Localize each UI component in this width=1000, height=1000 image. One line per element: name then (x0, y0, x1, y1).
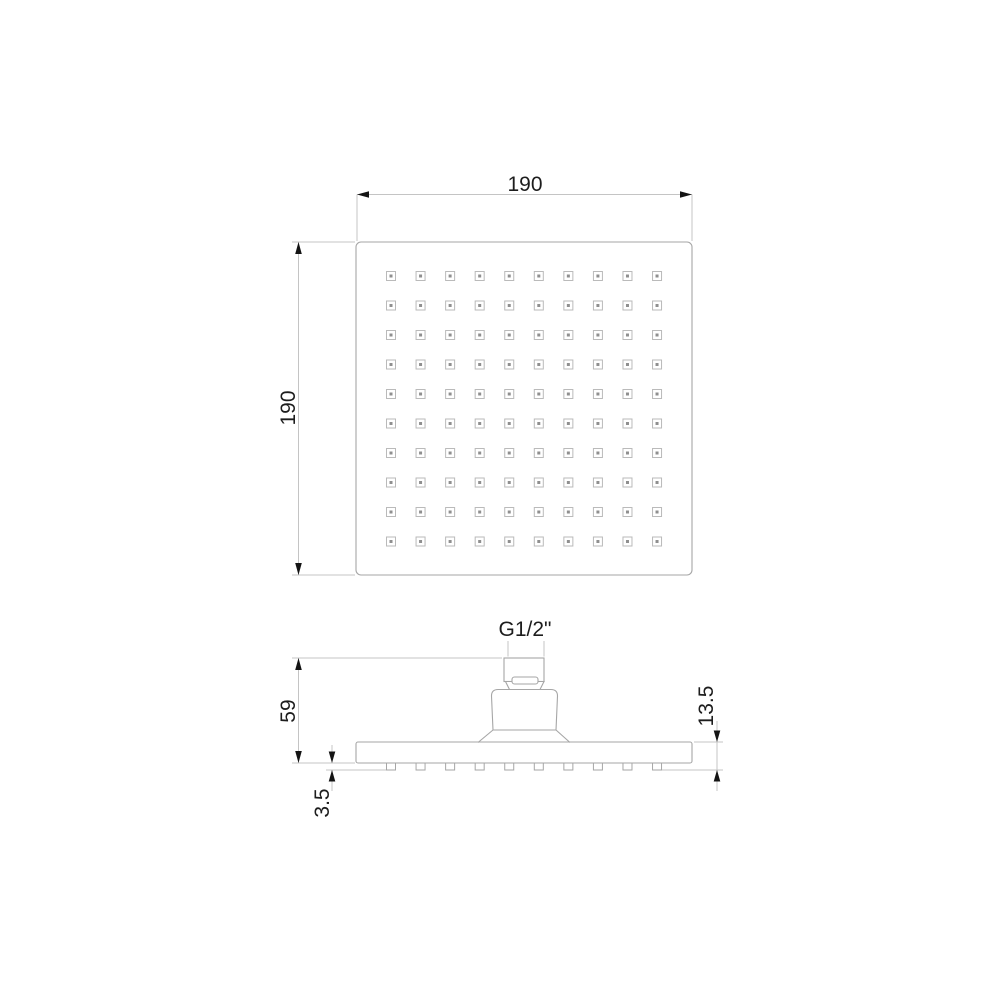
side-nozzle (623, 763, 632, 770)
side-nozzle (564, 763, 573, 770)
dim-top-width: 190 (357, 173, 692, 241)
nozzle-dot (596, 393, 599, 396)
nozzle-dot (390, 275, 393, 278)
nozzle-dot (656, 422, 659, 425)
nozzle-dot (596, 540, 599, 543)
nozzle-dot (508, 393, 511, 396)
nozzle-dot (478, 363, 481, 366)
nozzle-dot (390, 452, 393, 455)
technical-drawing: 190 190 G1/2" 59 (0, 0, 1000, 1000)
nozzle-dot (596, 511, 599, 514)
nozzle-dot (537, 452, 540, 455)
nozzle-dot (449, 363, 452, 366)
nozzle-dot (626, 334, 629, 337)
nozzle-dot (537, 511, 540, 514)
nozzle-dot (537, 334, 540, 337)
nozzle-dot (419, 422, 422, 425)
nozzle-dot (449, 422, 452, 425)
dim-nozzle-height-label: 3.5 (311, 788, 334, 817)
nozzle-dot (596, 481, 599, 484)
arrowhead-left (357, 191, 369, 198)
nozzle-dot (596, 422, 599, 425)
arrowhead-up (714, 770, 721, 782)
nozzle-dot (478, 422, 481, 425)
side-nozzle (446, 763, 455, 770)
side-view (356, 658, 692, 770)
nozzle-dot (419, 275, 422, 278)
arrowhead-down (295, 751, 302, 763)
nozzle-dot (508, 275, 511, 278)
nozzle-dot (508, 511, 511, 514)
nozzle-dot (596, 275, 599, 278)
arrowhead-up (329, 770, 336, 782)
nozzle-dot (596, 363, 599, 366)
arrowhead-down (295, 563, 302, 575)
nozzle-dot (626, 481, 629, 484)
nozzle-dot (390, 422, 393, 425)
dim-side-height-label: 59 (277, 699, 300, 722)
nozzle-dot (596, 452, 599, 455)
nozzle-dot (626, 393, 629, 396)
side-nozzle (653, 763, 662, 770)
nozzle-dot (419, 334, 422, 337)
nozzle-dot (390, 363, 393, 366)
arrowhead-right (680, 191, 692, 198)
nozzle-dot (390, 540, 393, 543)
nozzle-dot (626, 304, 629, 307)
nozzle-dot (449, 511, 452, 514)
nozzle-dot (596, 334, 599, 337)
nozzle-dot (419, 540, 422, 543)
nozzle-dot (390, 304, 393, 307)
side-nozzle (416, 763, 425, 770)
side-nozzle (475, 763, 484, 770)
nozzle-dot (419, 304, 422, 307)
nozzle-dot (656, 363, 659, 366)
dim-left-height-label: 190 (277, 390, 300, 425)
nozzle-dot (567, 334, 570, 337)
nozzle-dot (478, 481, 481, 484)
nozzle-dot (537, 393, 540, 396)
dim-left-height: 190 (277, 242, 355, 575)
nozzle-dot (508, 304, 511, 307)
nozzle-dot (626, 275, 629, 278)
nozzle-dot (626, 540, 629, 543)
nozzle-dot (567, 452, 570, 455)
nozzle-dot (508, 363, 511, 366)
nozzle-dot (478, 275, 481, 278)
nozzle-dot (656, 393, 659, 396)
nozzle-dot (478, 304, 481, 307)
nozzle-dot (449, 540, 452, 543)
nozzle-dot (390, 393, 393, 396)
dim-side-height: 59 (277, 658, 502, 763)
nozzle-dot (567, 540, 570, 543)
nozzle-dot (537, 540, 540, 543)
nozzle-dot (537, 363, 540, 366)
side-nozzle (505, 763, 514, 770)
showerhead-face-outline (356, 242, 692, 575)
collar-cap (512, 677, 538, 684)
nozzle-dot (419, 452, 422, 455)
dim-nozzle-height: 3.5 (311, 745, 386, 818)
nozzle-dot (508, 422, 511, 425)
arrowhead-down (329, 752, 336, 764)
nozzle-dot (626, 422, 629, 425)
nozzle-dot (596, 304, 599, 307)
nozzle-dot (508, 540, 511, 543)
nozzle-dot (478, 511, 481, 514)
side-nozzle (593, 763, 602, 770)
nozzle-dot (567, 363, 570, 366)
nozzle-dot (508, 452, 511, 455)
nozzle-dot (626, 511, 629, 514)
side-nozzle (534, 763, 543, 770)
nozzle-dot (478, 393, 481, 396)
nozzle-dot (390, 334, 393, 337)
thread-label: G1/2" (499, 618, 552, 641)
nozzle-dot (567, 511, 570, 514)
nozzle-dot (656, 334, 659, 337)
nozzle-dot (626, 363, 629, 366)
nozzle-dot (449, 275, 452, 278)
nozzle-dot (390, 511, 393, 514)
nozzle-dot (537, 481, 540, 484)
side-nozzle-row (387, 763, 662, 770)
nozzle-dot (656, 511, 659, 514)
nozzle-dot (656, 275, 659, 278)
nozzle-dot (567, 304, 570, 307)
nozzle-dot (537, 275, 540, 278)
dim-top-width-label: 190 (507, 173, 542, 196)
arrowhead-down (714, 731, 721, 743)
cone-flare-left (478, 730, 493, 743)
nozzle-grid (387, 272, 662, 547)
nozzle-dot (449, 334, 452, 337)
nozzle-dot (449, 452, 452, 455)
nozzle-dot (537, 304, 540, 307)
nozzle-dot (537, 422, 540, 425)
showerhead-plate (356, 742, 692, 763)
nozzle-dot (508, 334, 511, 337)
nozzle-dot (656, 304, 659, 307)
arrowhead-up (295, 658, 302, 670)
nozzle-dot (478, 334, 481, 337)
nozzle-dot (449, 393, 452, 396)
nozzle-dot (567, 422, 570, 425)
nozzle-dot (626, 452, 629, 455)
top-view (356, 242, 692, 575)
nozzle-dot (656, 452, 659, 455)
nozzle-dot (656, 540, 659, 543)
nozzle-dot (478, 452, 481, 455)
nozzle-dot (419, 511, 422, 514)
thread-callout: G1/2" (499, 618, 552, 657)
nozzle-dot (656, 481, 659, 484)
cone-flare-right (556, 730, 570, 743)
nozzle-dot (449, 481, 452, 484)
nozzle-dot (478, 540, 481, 543)
side-nozzle (387, 763, 396, 770)
dim-head-depth: 13.5 (662, 686, 723, 791)
nozzle-dot (419, 363, 422, 366)
dim-head-depth-label: 13.5 (695, 686, 718, 727)
nozzle-dot (449, 304, 452, 307)
nozzle-dot (390, 481, 393, 484)
nozzle-dot (567, 393, 570, 396)
arrowhead-up (295, 242, 302, 254)
nozzle-dot (508, 481, 511, 484)
cone-body (492, 690, 558, 731)
nozzle-dot (567, 481, 570, 484)
nozzle-dot (419, 481, 422, 484)
nozzle-dot (419, 393, 422, 396)
nozzle-dot (567, 275, 570, 278)
